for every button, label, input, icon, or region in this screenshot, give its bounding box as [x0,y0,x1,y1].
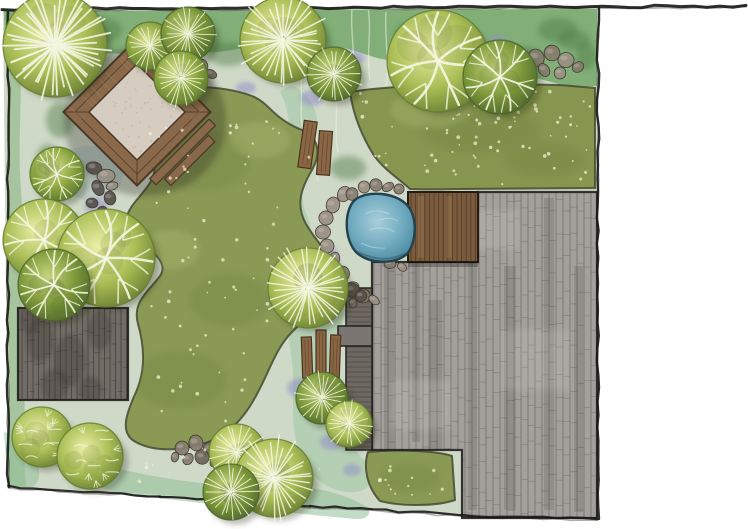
lawn-mottle [380,464,440,492]
boulder [554,67,566,80]
lawn-mottle [505,142,585,178]
stepping-plank [316,131,332,176]
lawn-mottle [230,122,290,158]
lawn-mottle [134,352,226,408]
wood-deck [408,192,478,267]
stepping-plank [329,335,340,378]
lawn-mottle [190,274,270,326]
stepping-plank [316,330,326,377]
foliage-blob [538,18,578,42]
patio-step [338,326,372,346]
paper-margin-right [599,0,748,529]
boulder [315,225,330,239]
foliage-blob [330,156,366,180]
garden-plan [0,0,748,529]
stepping-plank [301,337,312,378]
lavender-patch [343,464,361,476]
garden-plan-canvas [0,0,748,529]
layer-paper-margin [599,0,748,529]
